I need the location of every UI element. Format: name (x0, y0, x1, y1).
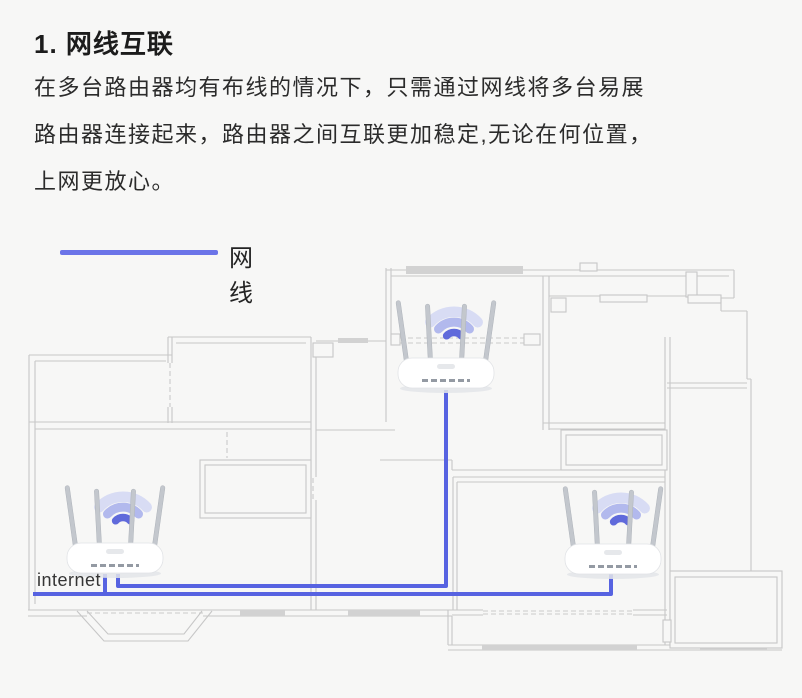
internet-label: internet (37, 570, 101, 591)
floorplan-walls (28, 263, 782, 650)
router-internet (65, 485, 165, 578)
router-top (396, 300, 496, 393)
router-bottom-right (563, 486, 663, 579)
infographic: 1. 网线互联 在多台路由器均有布线的情况下，只需通过网线将多台易展 路由器连接… (0, 0, 802, 698)
floorplan-diagram (0, 0, 802, 698)
